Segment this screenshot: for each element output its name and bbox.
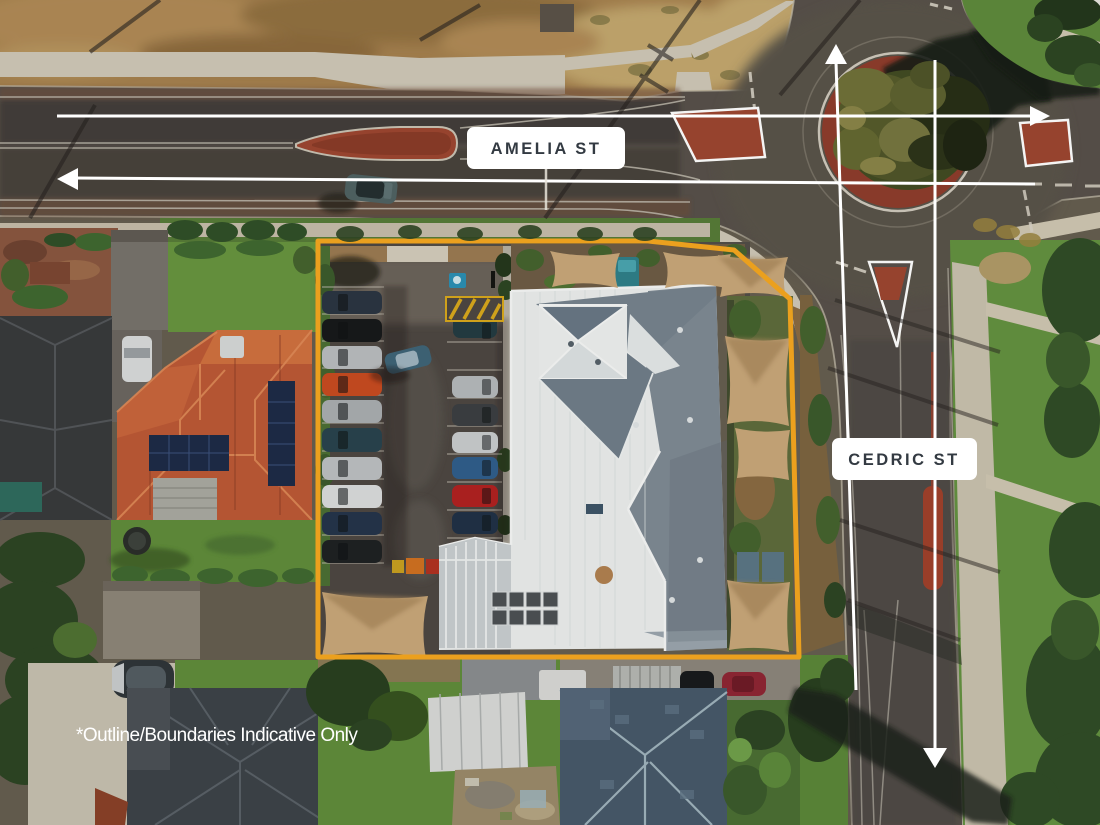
svg-text:CEDRIC ST: CEDRIC ST bbox=[848, 451, 959, 469]
svg-text:*Outline/Boundaries Indicative: *Outline/Boundaries Indicative Only bbox=[76, 725, 358, 746]
svg-text:AMELIA ST: AMELIA ST bbox=[491, 140, 602, 158]
